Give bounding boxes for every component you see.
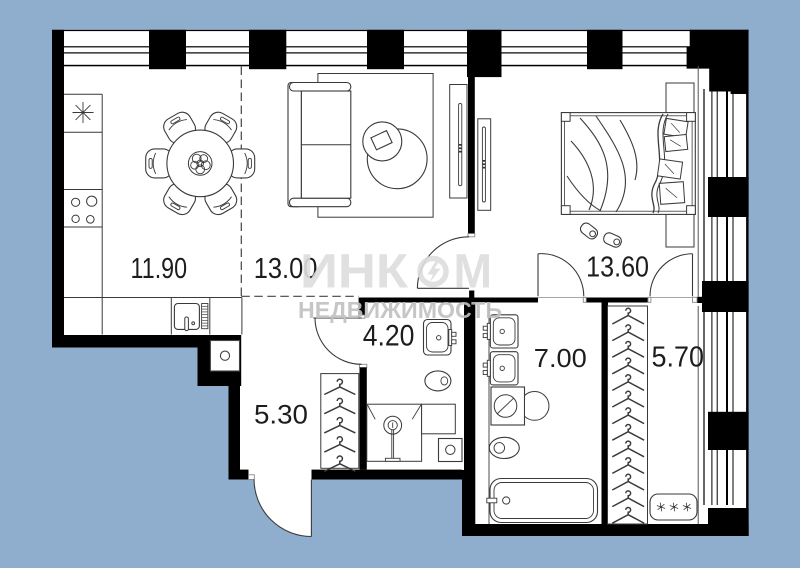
svg-text:5.70: 5.70 xyxy=(652,342,705,374)
svg-text:5.30: 5.30 xyxy=(254,400,308,430)
svg-text:13.60: 13.60 xyxy=(586,252,649,284)
svg-text:7.00: 7.00 xyxy=(534,345,587,373)
svg-text:4.20: 4.20 xyxy=(363,320,415,353)
svg-text:НЕДВИЖИМОСТЬ: НЕДВИЖИМОСТЬ xyxy=(298,297,502,323)
svg-text:ИНК: ИНК xyxy=(300,246,409,299)
svg-text:М: М xyxy=(454,246,493,299)
svg-text:11.90: 11.90 xyxy=(131,253,188,285)
